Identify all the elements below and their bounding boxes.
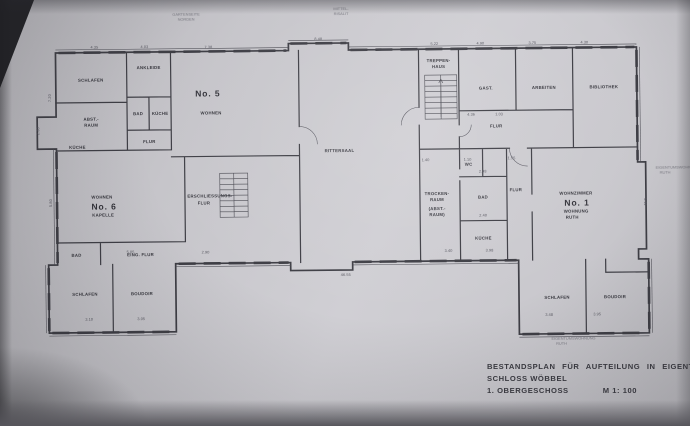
room-label-ankleide: ANKLEIDE [137, 65, 161, 70]
dimension-label: 7.20 [48, 94, 52, 102]
apartment-number-6: No. 6 [91, 201, 116, 211]
annotation-top-left-line2: NORDEN [178, 17, 195, 22]
dimension-label: 5.80 [49, 199, 53, 207]
room-label-wc: WC [465, 162, 473, 167]
apartment-1-ruth: RUTH [566, 215, 579, 220]
dimension-label: 1.03 [495, 112, 503, 116]
apartment-number-1: No. 1 [564, 197, 589, 207]
annotation-right-line2: RUTH [660, 170, 671, 175]
room-label-trockenraum-line1: TROCKEN- [425, 191, 450, 196]
dimension-label: 2.40 [479, 214, 487, 218]
room-label-treppenhaus-line1: TREPPEN- [427, 58, 451, 63]
dimension-label: 3.40 [445, 249, 453, 253]
dimension-label: 4.90 [476, 42, 484, 46]
plan-subtitle: SCHLOSS WÖBBEL [487, 373, 690, 385]
dimension-label: 1.40 [422, 158, 430, 162]
dimension-label: 5.05 [127, 250, 135, 254]
dimension-label: 2.98 [479, 170, 487, 174]
apartment-1-wohnung: WOHNUNG [564, 208, 589, 213]
dimension-label: 1.55 [508, 156, 516, 160]
room-label-abstellraum-line1: ABST.- [83, 117, 99, 122]
room-label-kueche-e: KÜCHE [475, 235, 492, 240]
room-label-boudoir-sw: BOUDOIR [131, 291, 154, 296]
room-label-kueche-w: KÜCHE [69, 145, 86, 150]
room-label-trockenraum-line2: RAUM [430, 197, 444, 202]
dimension-label: 3.05 [137, 317, 145, 321]
apartment-number-5: No. 5 [195, 88, 220, 98]
dimension-label: 7.38 [204, 45, 212, 49]
plan-scale: M 1: 100 [603, 386, 637, 395]
apartment-6-kapelle: KAPELLE [92, 212, 114, 217]
dimension-label: 2.30 [36, 127, 40, 135]
room-label-rittersaal: RITTERSAAL [325, 148, 355, 153]
room-label-erschliessungsflur-line1: ERSCHLIESSUNGS- [187, 193, 232, 198]
photographed-floor-plan: SCHLAFEN ANKLEIDE ABST.- RAUM BAD KÜCHE … [0, 0, 690, 426]
room-label-schlafen-se: SCHLAFEN [544, 295, 569, 300]
room-label-trockenraum-line3: (ABST.- [429, 206, 446, 211]
treppenhaus-staircase [425, 75, 457, 119]
dimension-label: 3.10 [85, 318, 93, 322]
title-block: BESTANDSPLAN FÜR AUFTEILUNG IN EIGENTUMS… [487, 361, 690, 397]
room-label-abstellraum-line2: RAUM [84, 123, 98, 128]
room-labels: SCHLAFEN ANKLEIDE ABST.- RAUM BAD KÜCHE … [68, 56, 626, 305]
annotation-bottom-line2: RUTH [556, 341, 567, 346]
dimension-label: 4.03 [140, 45, 148, 49]
room-label-gast: GAST. [479, 85, 493, 90]
room-label-flur-nw: FLUR [143, 139, 156, 144]
room-label-arbeiten: ARBEITEN [532, 85, 556, 90]
room-label-boudoir-se: BOUDOIR [604, 294, 627, 299]
room-label-bad-nw: BAD [133, 111, 143, 116]
plan-floor-label: 1. OBERGESCHOSS [487, 386, 569, 395]
dimension-label: 4.36 [467, 113, 475, 117]
dimension-label: 3.95 [593, 312, 601, 316]
room-label-bad-sw: BAD [72, 253, 82, 258]
room-label-wohnzimmer: WOHNZIMMER [559, 190, 593, 195]
dimension-label: 3.75 [528, 41, 536, 45]
annotation-top-center-line2: RISALIT [334, 11, 349, 16]
room-label-trockenraum-line4: RAUM) [429, 212, 445, 217]
dimension-label: 46.55 [341, 273, 351, 277]
dimension-label: 4.30 [580, 40, 588, 44]
room-label-flur-ne: FLUR [490, 123, 503, 128]
dimension-label: 3.98 [486, 248, 494, 252]
dimension-label: 5.22 [430, 42, 438, 46]
door-arcs [299, 106, 528, 168]
room-label-wohnen-6: WOHNEN [91, 194, 112, 199]
room-label-erschliessungsflur-line2: FLUR [198, 200, 211, 205]
dimension-label: 5.11 [643, 198, 647, 206]
room-label-treppenhaus-line2: HAUS [432, 64, 445, 69]
dimension-label: 2.90 [202, 250, 210, 254]
room-label-kueche-nw: KÜCHE [152, 111, 169, 116]
room-label-schlafen-sw: SCHLAFEN [72, 292, 97, 297]
room-label-bibliothek: BIBLIOTHEK [589, 84, 618, 89]
room-label-flur-e: FLUR [510, 187, 523, 192]
room-label-wohnen-5: WOHNEN [201, 110, 222, 115]
room-label-schlafen-nw: SCHLAFEN [78, 78, 103, 83]
dimension-label: 3.48 [545, 313, 553, 317]
dimension-label: 8.48 [314, 37, 322, 41]
dimension-label: 1.10 [464, 158, 472, 162]
dimension-label: 4.35 [90, 46, 98, 50]
room-label-bad-e: BAD [478, 195, 488, 200]
plan-title: BESTANDSPLAN FÜR AUFTEILUNG IN EIGENTUMS… [487, 361, 690, 373]
